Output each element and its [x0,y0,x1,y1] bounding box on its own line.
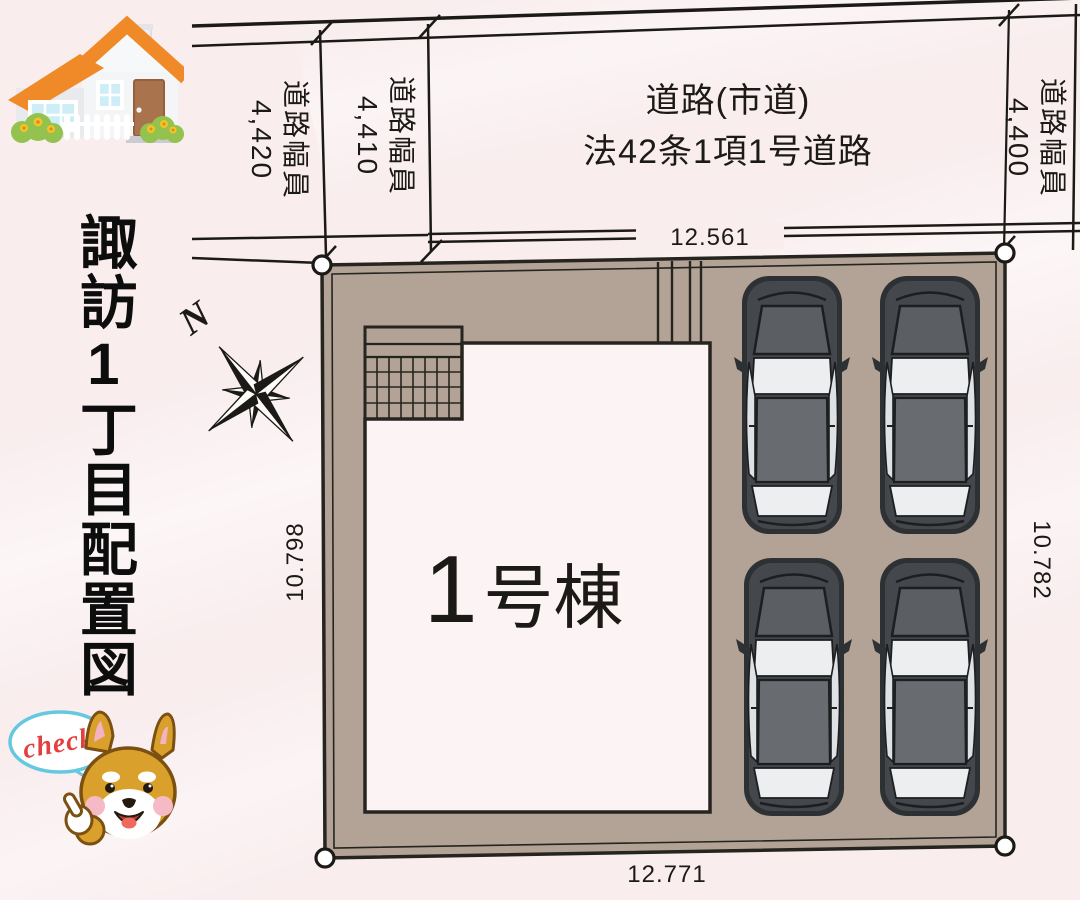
road-division-line [311,22,336,268]
road-edge-line [192,235,428,239]
dimension-top: 12.561 [670,224,749,251]
road-width-label-3: 道路幅員 4,400 [1003,78,1068,198]
svg-text:4,410: 4,410 [352,96,383,176]
svg-text:道路幅員: 道路幅員 [1037,78,1068,198]
road-edge-line [1073,4,1076,250]
car-icon [736,558,852,816]
road-division-line [419,15,442,262]
road-area: 道路(市道) 法42条1項1号道路 道路幅員 4,420 道路幅員 4,410 … [192,0,1080,268]
svg-text:4,400: 4,400 [1003,98,1034,178]
road-name-label: 道路(市道) 法42条1項1号道路 [583,82,873,171]
svg-text:道路幅員: 道路幅員 [280,80,311,200]
dog-mascot-icon: check [2,700,190,848]
car-icon [872,276,988,534]
site-plan-page: 道路(市道) 法42条1項1号道路 道路幅員 4,420 道路幅員 4,410 … [0,0,1080,900]
dimension-right: 10.782 [1028,520,1055,599]
car-icon [734,276,850,534]
north-label: N [171,292,220,344]
house-icon [8,14,184,148]
road-width-label-2: 道路幅員 4,410 [352,76,417,196]
main-window [98,82,122,108]
lot: 1号棟 [313,244,1014,867]
car-icon [872,558,988,816]
dimension-bottom: 12.771 [627,861,706,888]
road-width-label-1: 道路幅員 4,420 [246,80,311,200]
dimension-left: 10.798 [282,522,309,601]
road-edge-line [192,258,321,263]
svg-text:法42条1項1号道路: 法42条1項1号道路 [583,133,873,171]
road-edge-line [192,0,1080,26]
svg-text:道路幅員: 道路幅員 [386,76,417,196]
north-compass-icon: N [171,292,341,478]
page-title: 諏訪1丁目配置図 [72,212,133,699]
svg-text:道路(市道): 道路(市道) [646,82,811,120]
svg-text:4,420: 4,420 [246,100,277,180]
